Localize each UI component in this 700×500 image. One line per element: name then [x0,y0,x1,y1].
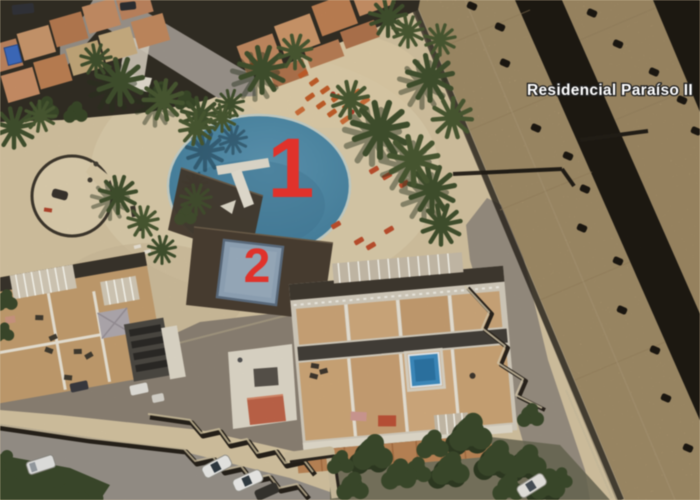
photo-grain [0,0,700,500]
place-name-label: Residencial Paraíso II [527,82,693,99]
marker-1-label: 1 [268,121,315,215]
map-canvas: 1 2 Residencial Paraíso II [0,0,700,500]
satellite-map-image: 1 2 Residencial Paraíso II [0,0,700,500]
marker-2-label: 2 [244,240,271,293]
